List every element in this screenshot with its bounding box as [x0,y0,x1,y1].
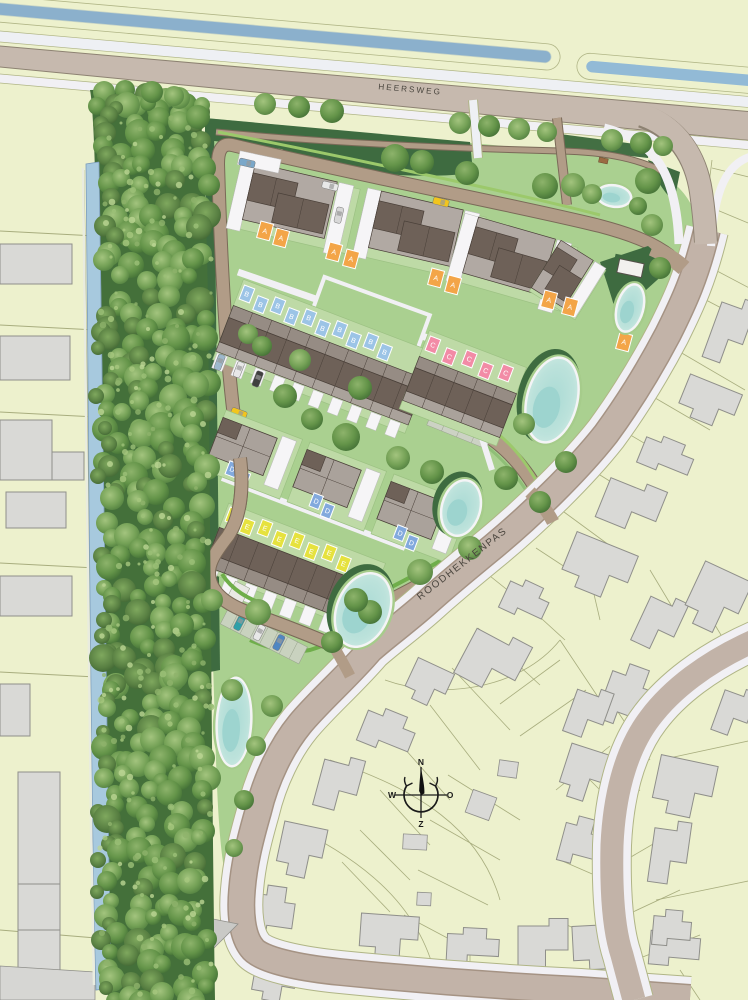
svg-text:O: O [447,790,454,800]
svg-text:W: W [388,790,397,800]
svg-text:Z: Z [418,819,423,829]
svg-text:N: N [418,757,424,767]
